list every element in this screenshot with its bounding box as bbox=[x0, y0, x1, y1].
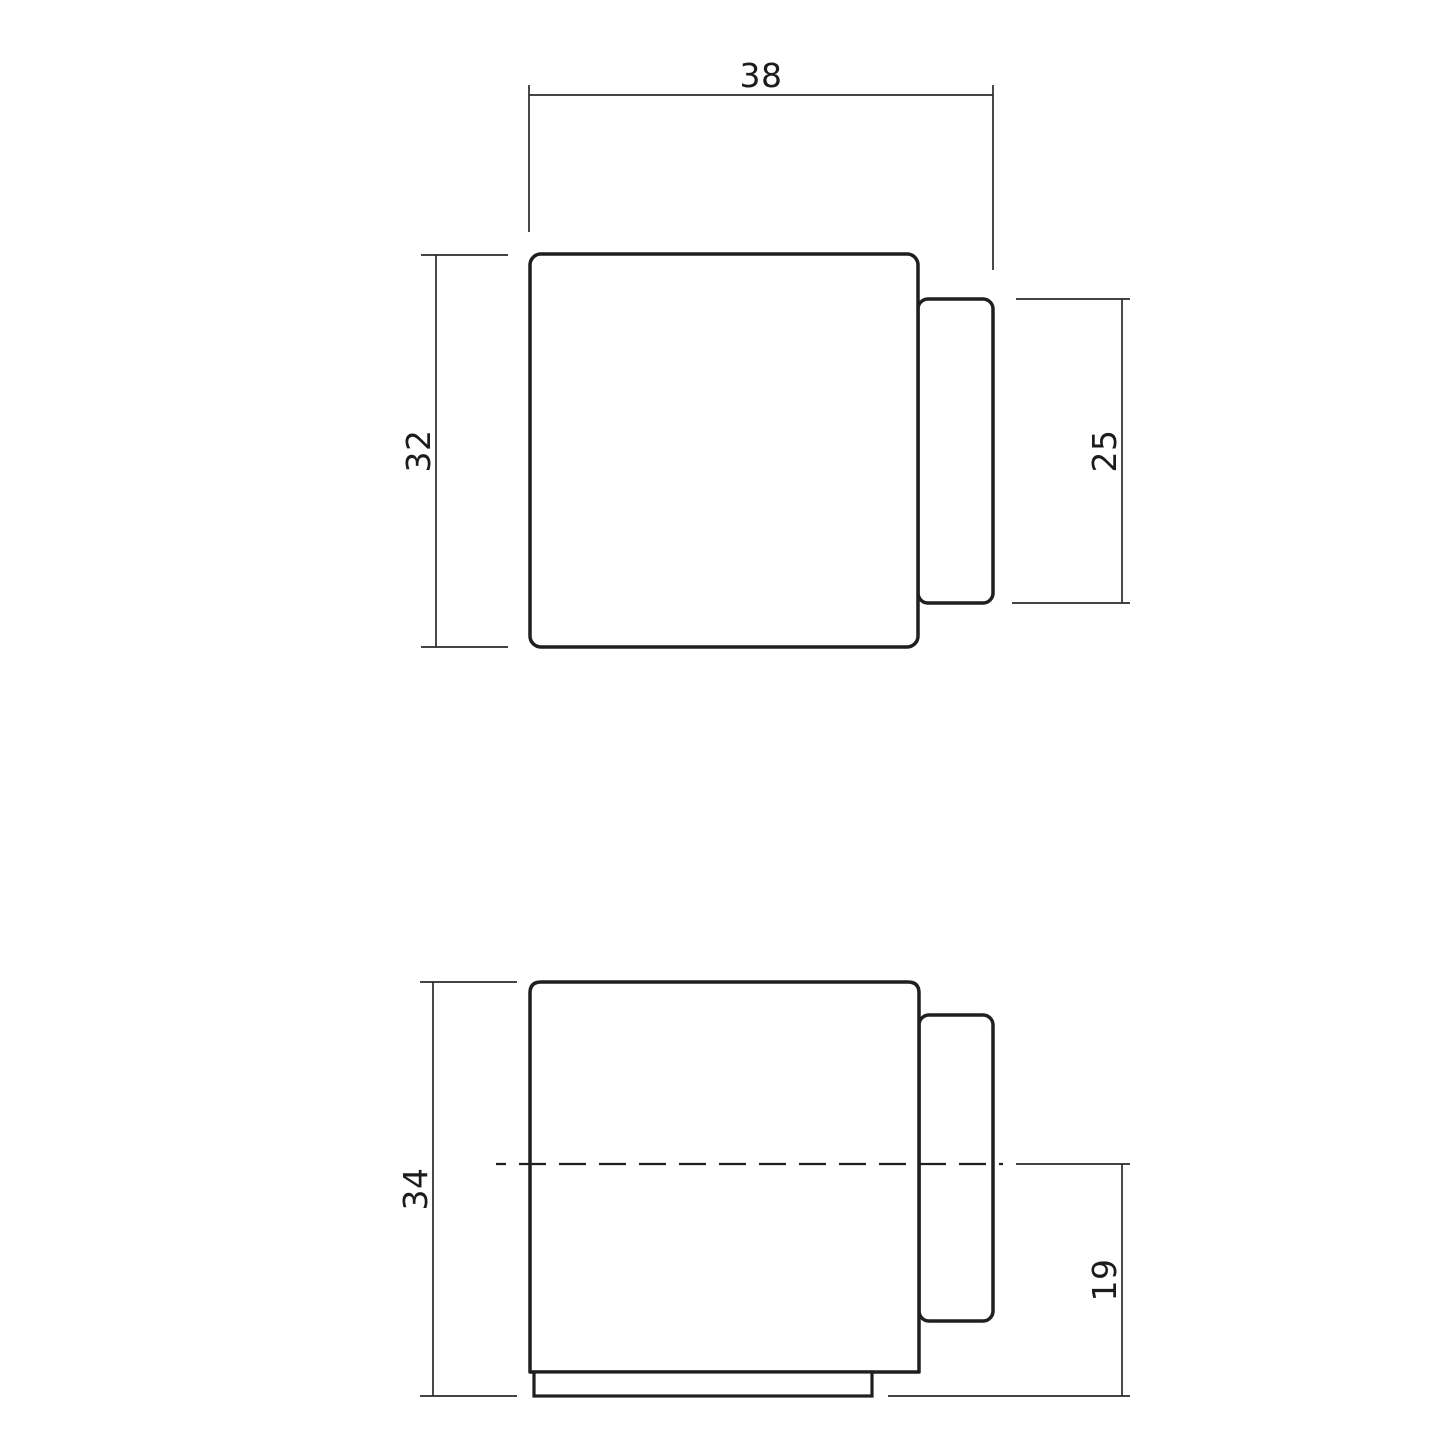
dim-bumper-bottom-offset-label: 19 bbox=[1085, 1259, 1124, 1302]
front-view-bumper-outline bbox=[919, 1015, 993, 1321]
dim-body-height: 32 bbox=[399, 255, 508, 647]
technical-drawing-canvas: 38 32 25 bbox=[0, 0, 1445, 1445]
top-view-body-outline bbox=[530, 254, 918, 647]
front-view: 34 19 bbox=[396, 982, 1130, 1396]
front-view-body-outline bbox=[530, 982, 919, 1372]
dim-overall-height: 34 bbox=[396, 982, 517, 1396]
dim-bumper-height: 25 bbox=[1012, 299, 1130, 603]
dim-bumper-height-label: 25 bbox=[1085, 430, 1124, 473]
top-view: 38 32 25 bbox=[399, 56, 1130, 647]
dim-overall-height-label: 34 bbox=[396, 1168, 435, 1211]
dimension-drawing-svg: 38 32 25 bbox=[0, 0, 1445, 1445]
front-view-base-plate-outline bbox=[534, 1372, 872, 1396]
dim-body-height-label: 32 bbox=[399, 430, 438, 473]
dim-overall-width-label: 38 bbox=[740, 56, 783, 95]
dim-overall-width: 38 bbox=[529, 56, 993, 270]
top-view-bumper-outline bbox=[918, 299, 993, 603]
